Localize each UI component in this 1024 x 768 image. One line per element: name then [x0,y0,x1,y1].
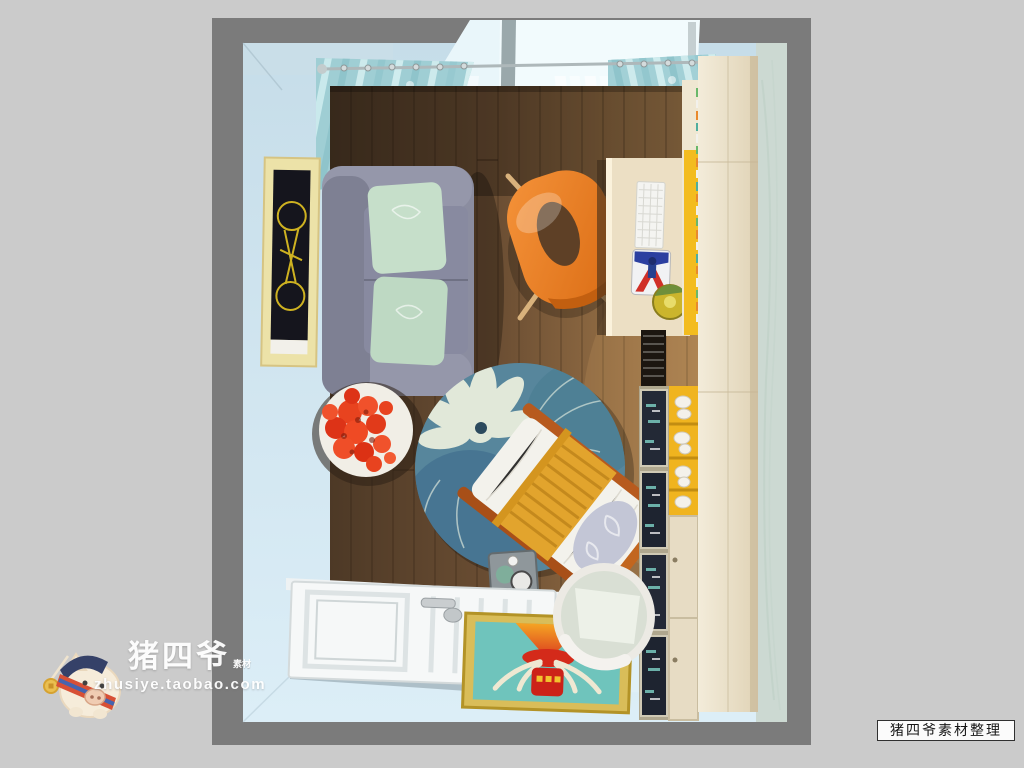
glass-display-cabinet [639,386,669,720]
right-wall [756,43,787,722]
round-standing-mirror [557,567,651,665]
yellow-display-shelf [669,386,698,516]
round-side-table [312,382,424,486]
watermark: 猪四爷 素材 zhusiye.taobao.com [38,640,266,724]
lower-cabinet-doors [669,516,698,720]
page: 猪四爷 素材 zhusiye.taobao.com 猪四爷素材整理 [0,0,1024,768]
gray-sofa [322,166,504,408]
white-keyboard [635,182,665,249]
watermark-url-text: zhusiye.taobao.com [94,676,266,693]
bicycle-wall-art [261,158,320,367]
media-rack [641,330,666,386]
watermark-badge-text: 素材 [233,657,251,670]
wardrobe-cabinet [698,56,758,712]
round-trinket [653,285,687,319]
watermark-brand-text: 猪四爷 [128,640,230,674]
footer-label: 猪四爷素材整理 [877,720,1015,741]
desk [597,158,690,336]
